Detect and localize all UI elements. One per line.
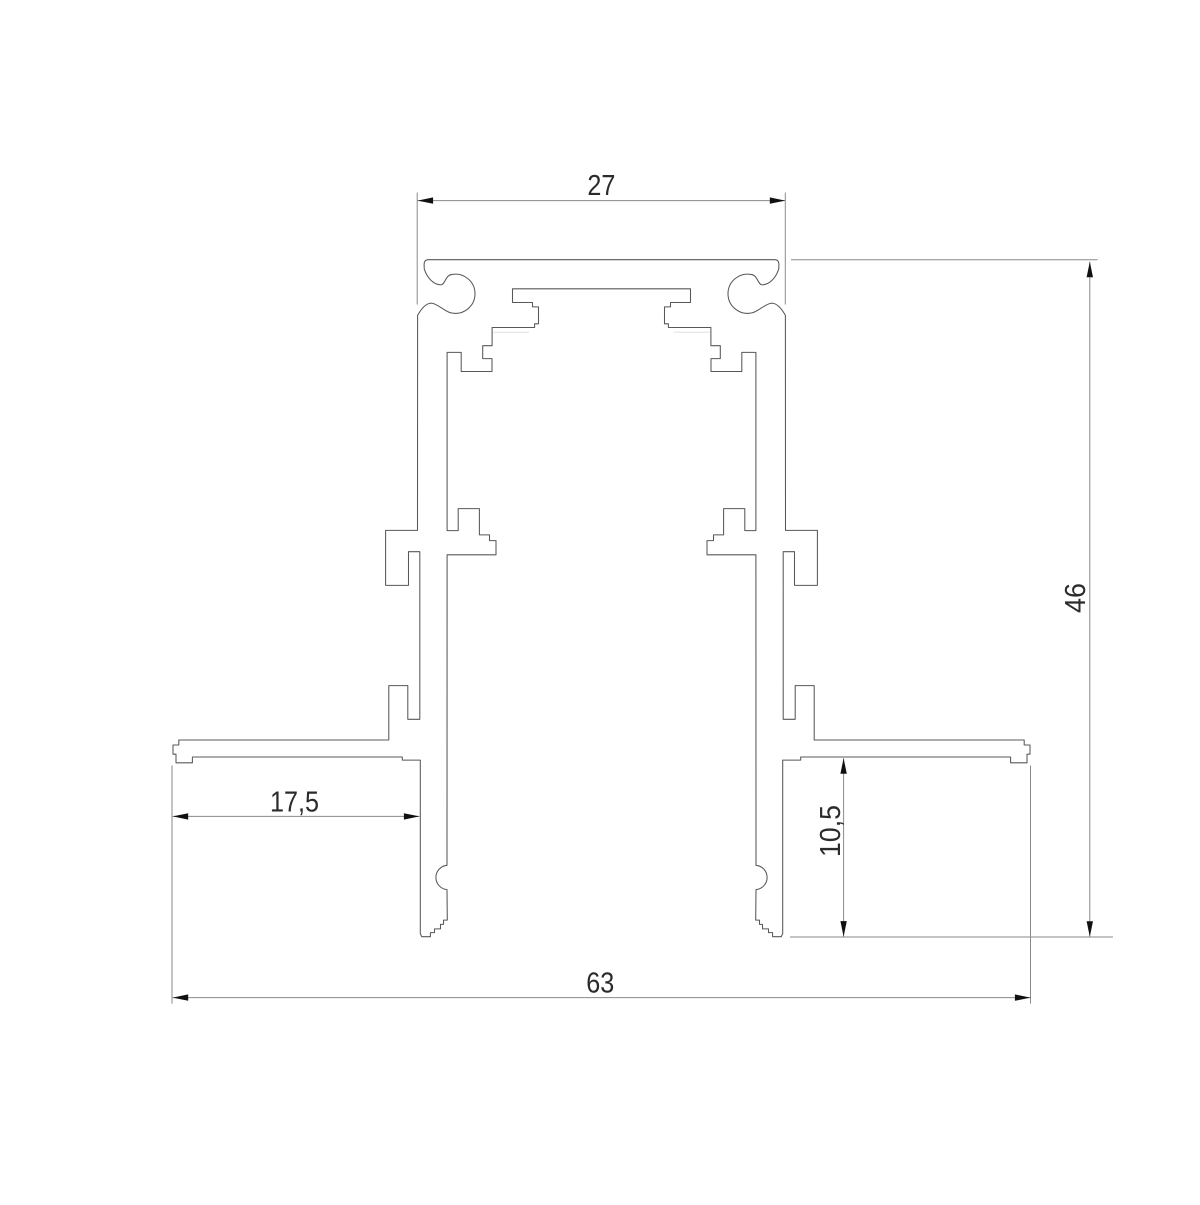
svg-text:17,5: 17,5 (270, 786, 319, 818)
svg-text:63: 63 (586, 967, 614, 999)
svg-text:27: 27 (587, 170, 615, 202)
svg-text:46: 46 (1060, 583, 1092, 613)
svg-text:10,5: 10,5 (815, 805, 847, 857)
